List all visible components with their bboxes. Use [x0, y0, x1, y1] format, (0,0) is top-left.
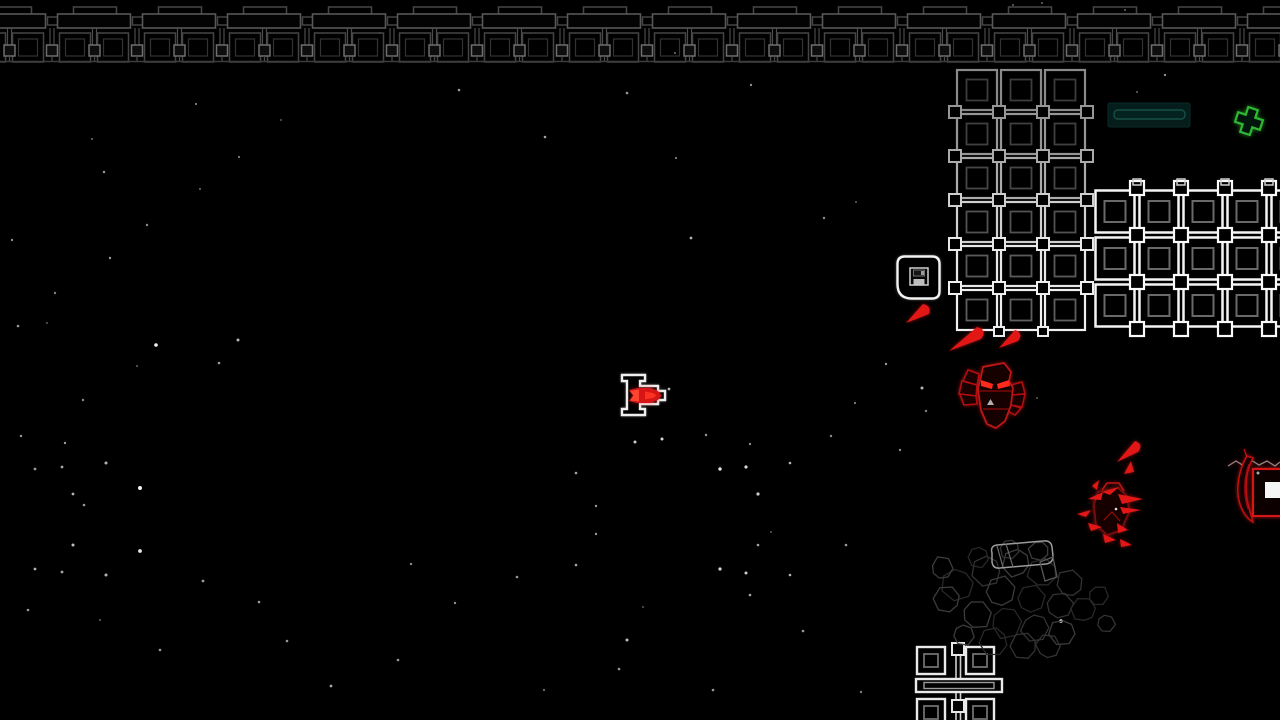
- game-viewport[interactable]: [0, 0, 1280, 720]
- star: [1124, 9, 1126, 11]
- star: [454, 602, 456, 604]
- rubble-rock: [1002, 549, 1028, 577]
- star: [154, 343, 158, 347]
- star: [11, 239, 13, 241]
- enemy-edge-claw[interactable]: [1228, 449, 1280, 522]
- star: [860, 691, 862, 693]
- swarm-spike: [1120, 539, 1132, 547]
- swarm-spike: [1088, 492, 1103, 500]
- rubble-rock: [1021, 615, 1049, 641]
- star: [458, 89, 461, 92]
- swarm-spike: [1120, 507, 1141, 514]
- star: [61, 466, 64, 469]
- red-shard: [1117, 441, 1140, 462]
- rubble-rock: [972, 556, 1000, 586]
- rubble-cluster: [933, 540, 1116, 658]
- star: [544, 136, 547, 139]
- star: [757, 544, 760, 547]
- star: [626, 92, 629, 95]
- swarm-spike: [1103, 534, 1116, 543]
- star: [885, 363, 887, 365]
- swarm-spike: [1118, 494, 1143, 504]
- rubble-rock: [1028, 542, 1047, 560]
- star: [718, 467, 721, 470]
- star: [64, 442, 66, 444]
- star: [91, 138, 93, 140]
- player-ship[interactable]: [622, 375, 665, 415]
- star: [1136, 91, 1138, 93]
- wall-grid-right: [1096, 179, 1280, 336]
- star: [238, 156, 240, 158]
- star: [109, 257, 111, 259]
- rubble-rock: [1036, 635, 1061, 658]
- star: [146, 224, 148, 226]
- star: [575, 472, 578, 475]
- star: [83, 504, 86, 507]
- star: [899, 449, 901, 451]
- star: [195, 103, 197, 105]
- star: [712, 689, 715, 692]
- wall-grid-upper: [949, 70, 1093, 336]
- star: [855, 201, 857, 203]
- star: [330, 685, 333, 688]
- rubble-rock: [1098, 615, 1116, 631]
- star: [1012, 4, 1014, 6]
- rubble-rock: [1010, 633, 1035, 658]
- girder-ceiling-structure: [0, 7, 1280, 62]
- star: [921, 387, 924, 390]
- star: [138, 549, 142, 553]
- star: [105, 462, 108, 465]
- star: [668, 388, 671, 391]
- star: [202, 580, 205, 583]
- star: [802, 630, 805, 633]
- star: [744, 465, 747, 468]
- star: [575, 564, 578, 567]
- star: [103, 171, 105, 173]
- star: [618, 668, 621, 671]
- star: [749, 594, 752, 597]
- rubble-rock: [968, 547, 988, 567]
- star: [595, 505, 597, 507]
- star: [845, 544, 848, 547]
- star: [61, 571, 64, 574]
- status-panel: [1108, 103, 1190, 127]
- star: [925, 410, 927, 412]
- rubble-rock: [1090, 587, 1109, 604]
- rubble-rock: [1049, 621, 1075, 645]
- star: [138, 486, 142, 490]
- rubble-rock: [1018, 585, 1045, 612]
- star: [675, 157, 677, 159]
- star: [756, 492, 759, 495]
- rubble-rock: [933, 557, 953, 578]
- star: [718, 567, 721, 570]
- star: [854, 402, 856, 404]
- swarm-spike: [1077, 510, 1091, 517]
- star: [17, 325, 20, 328]
- star: [159, 649, 162, 652]
- game-stage: [0, 0, 1280, 720]
- star: [674, 52, 676, 54]
- star: [54, 292, 56, 294]
- star: [516, 576, 519, 579]
- star: [626, 639, 629, 642]
- star: [690, 237, 693, 240]
- star: [237, 339, 240, 342]
- star: [543, 689, 545, 691]
- rubble-rock: [986, 576, 1015, 605]
- save-station[interactable]: [898, 257, 940, 299]
- star: [410, 563, 412, 565]
- rubble-rock: [942, 569, 973, 600]
- star: [789, 462, 792, 465]
- rubble-rock: [1057, 570, 1082, 595]
- star: [72, 493, 75, 496]
- star: [830, 435, 832, 437]
- enemy-swarm[interactable]: [1077, 461, 1143, 547]
- star: [82, 399, 84, 401]
- rubble-rock: [964, 602, 991, 627]
- star: [258, 601, 261, 604]
- red-shard: [906, 304, 930, 323]
- star: [105, 574, 108, 577]
- star: [280, 119, 282, 121]
- star: [745, 572, 748, 575]
- star: [136, 365, 138, 367]
- rubble-rock: [933, 587, 959, 612]
- star: [1041, 2, 1043, 4]
- star: [642, 606, 644, 608]
- star: [27, 609, 30, 612]
- star: [46, 322, 48, 324]
- star: [595, 533, 597, 535]
- star: [20, 435, 22, 437]
- star: [397, 659, 400, 662]
- star: [72, 544, 75, 547]
- star: [34, 468, 37, 471]
- star: [770, 531, 772, 533]
- star: [823, 217, 825, 219]
- rubble-rock: [1047, 593, 1073, 618]
- star: [286, 640, 289, 643]
- star: [34, 568, 37, 571]
- star: [749, 443, 751, 445]
- star: [99, 619, 101, 621]
- star: [705, 434, 707, 436]
- enemy-mech-body: [978, 363, 1013, 428]
- cross-pickup-icon[interactable]: [1233, 105, 1266, 138]
- star: [634, 441, 637, 444]
- star: [750, 84, 752, 86]
- star: [1164, 74, 1166, 76]
- star: [789, 574, 792, 577]
- star: [1036, 397, 1038, 399]
- swarm-spike: [1092, 480, 1099, 490]
- edge-cargo-core: [1265, 482, 1280, 498]
- star: [661, 438, 664, 441]
- star: [199, 188, 201, 190]
- enemy-mech[interactable]: [959, 363, 1025, 428]
- star: [218, 362, 221, 365]
- health-cross-pickup[interactable]: [1233, 105, 1266, 138]
